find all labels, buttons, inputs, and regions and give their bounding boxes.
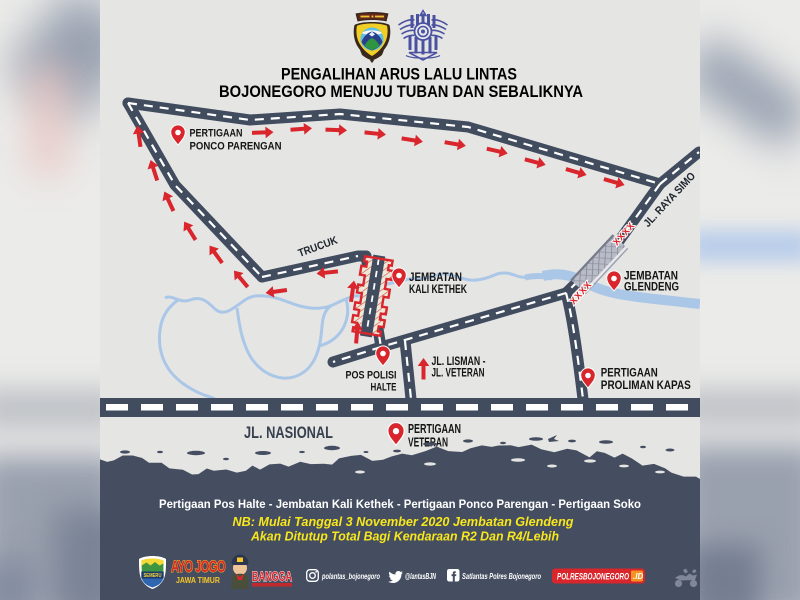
svg-text:JEMBATAN: JEMBATAN: [409, 272, 462, 284]
svg-text:PROLIMAN KAPAS: PROLIMAN KAPAS: [601, 380, 691, 392]
svg-text:@lantasBJN: @lantasBJN: [405, 571, 437, 581]
svg-text:.ID: .ID: [633, 572, 643, 581]
svg-text:POLRESBOJONEGORO: POLRESBOJONEGORO: [557, 572, 629, 582]
svg-text:AYO JOGO: AYO JOGO: [171, 558, 226, 576]
svg-text:KALI KETHEK: KALI KETHEK: [409, 284, 468, 296]
svg-text:Akan Ditutup Total Bagi Kendar: Akan Ditutup Total Bagi Kendaraan R2 Dan…: [250, 530, 559, 544]
svg-text:POS POLISI: POS POLISI: [346, 370, 397, 382]
svg-text:BANGGA: BANGGA: [252, 569, 292, 584]
svg-text:JL. LISMAN -: JL. LISMAN -: [432, 356, 486, 368]
svg-text:JAWA TIMUR: JAWA TIMUR: [176, 576, 220, 585]
svg-text:NB: Mulai Tanggal 3 November 2: NB: Mulai Tanggal 3 November 2020 Jembat…: [233, 515, 574, 529]
svg-text:polantas_bojonegoro: polantas_bojonegoro: [321, 571, 380, 581]
svg-text:SEMERU: SEMERU: [144, 573, 162, 579]
svg-text:JL. VETERAN: JL. VETERAN: [432, 368, 485, 380]
svg-text:PENGALIHAN ARUS LALU LINTAS: PENGALIHAN ARUS LALU LINTAS: [281, 65, 517, 84]
svg-text:BOJONEGORO MENUJU TUBAN DAN SE: BOJONEGORO MENUJU TUBAN DAN SEBALIKNYA: [219, 82, 583, 101]
svg-text:Satlantas Polres Bojonegoro: Satlantas Polres Bojonegoro: [462, 571, 541, 581]
svg-text:PERTIGAAN: PERTIGAAN: [190, 128, 243, 140]
svg-text:PERTIGAAN: PERTIGAAN: [601, 368, 658, 380]
svg-text:GLENDENG: GLENDENG: [624, 282, 679, 294]
svg-text:HALTE: HALTE: [371, 382, 397, 394]
svg-text:JL. NASIONAL: JL. NASIONAL: [244, 423, 333, 442]
svg-text:PONCO PARENGAN: PONCO PARENGAN: [190, 141, 282, 153]
svg-text:Pertigaan Pos Halte - Jembatan: Pertigaan Pos Halte - Jembatan Kali Keth…: [159, 497, 641, 511]
svg-text:PERTIGAAN: PERTIGAAN: [408, 422, 461, 436]
